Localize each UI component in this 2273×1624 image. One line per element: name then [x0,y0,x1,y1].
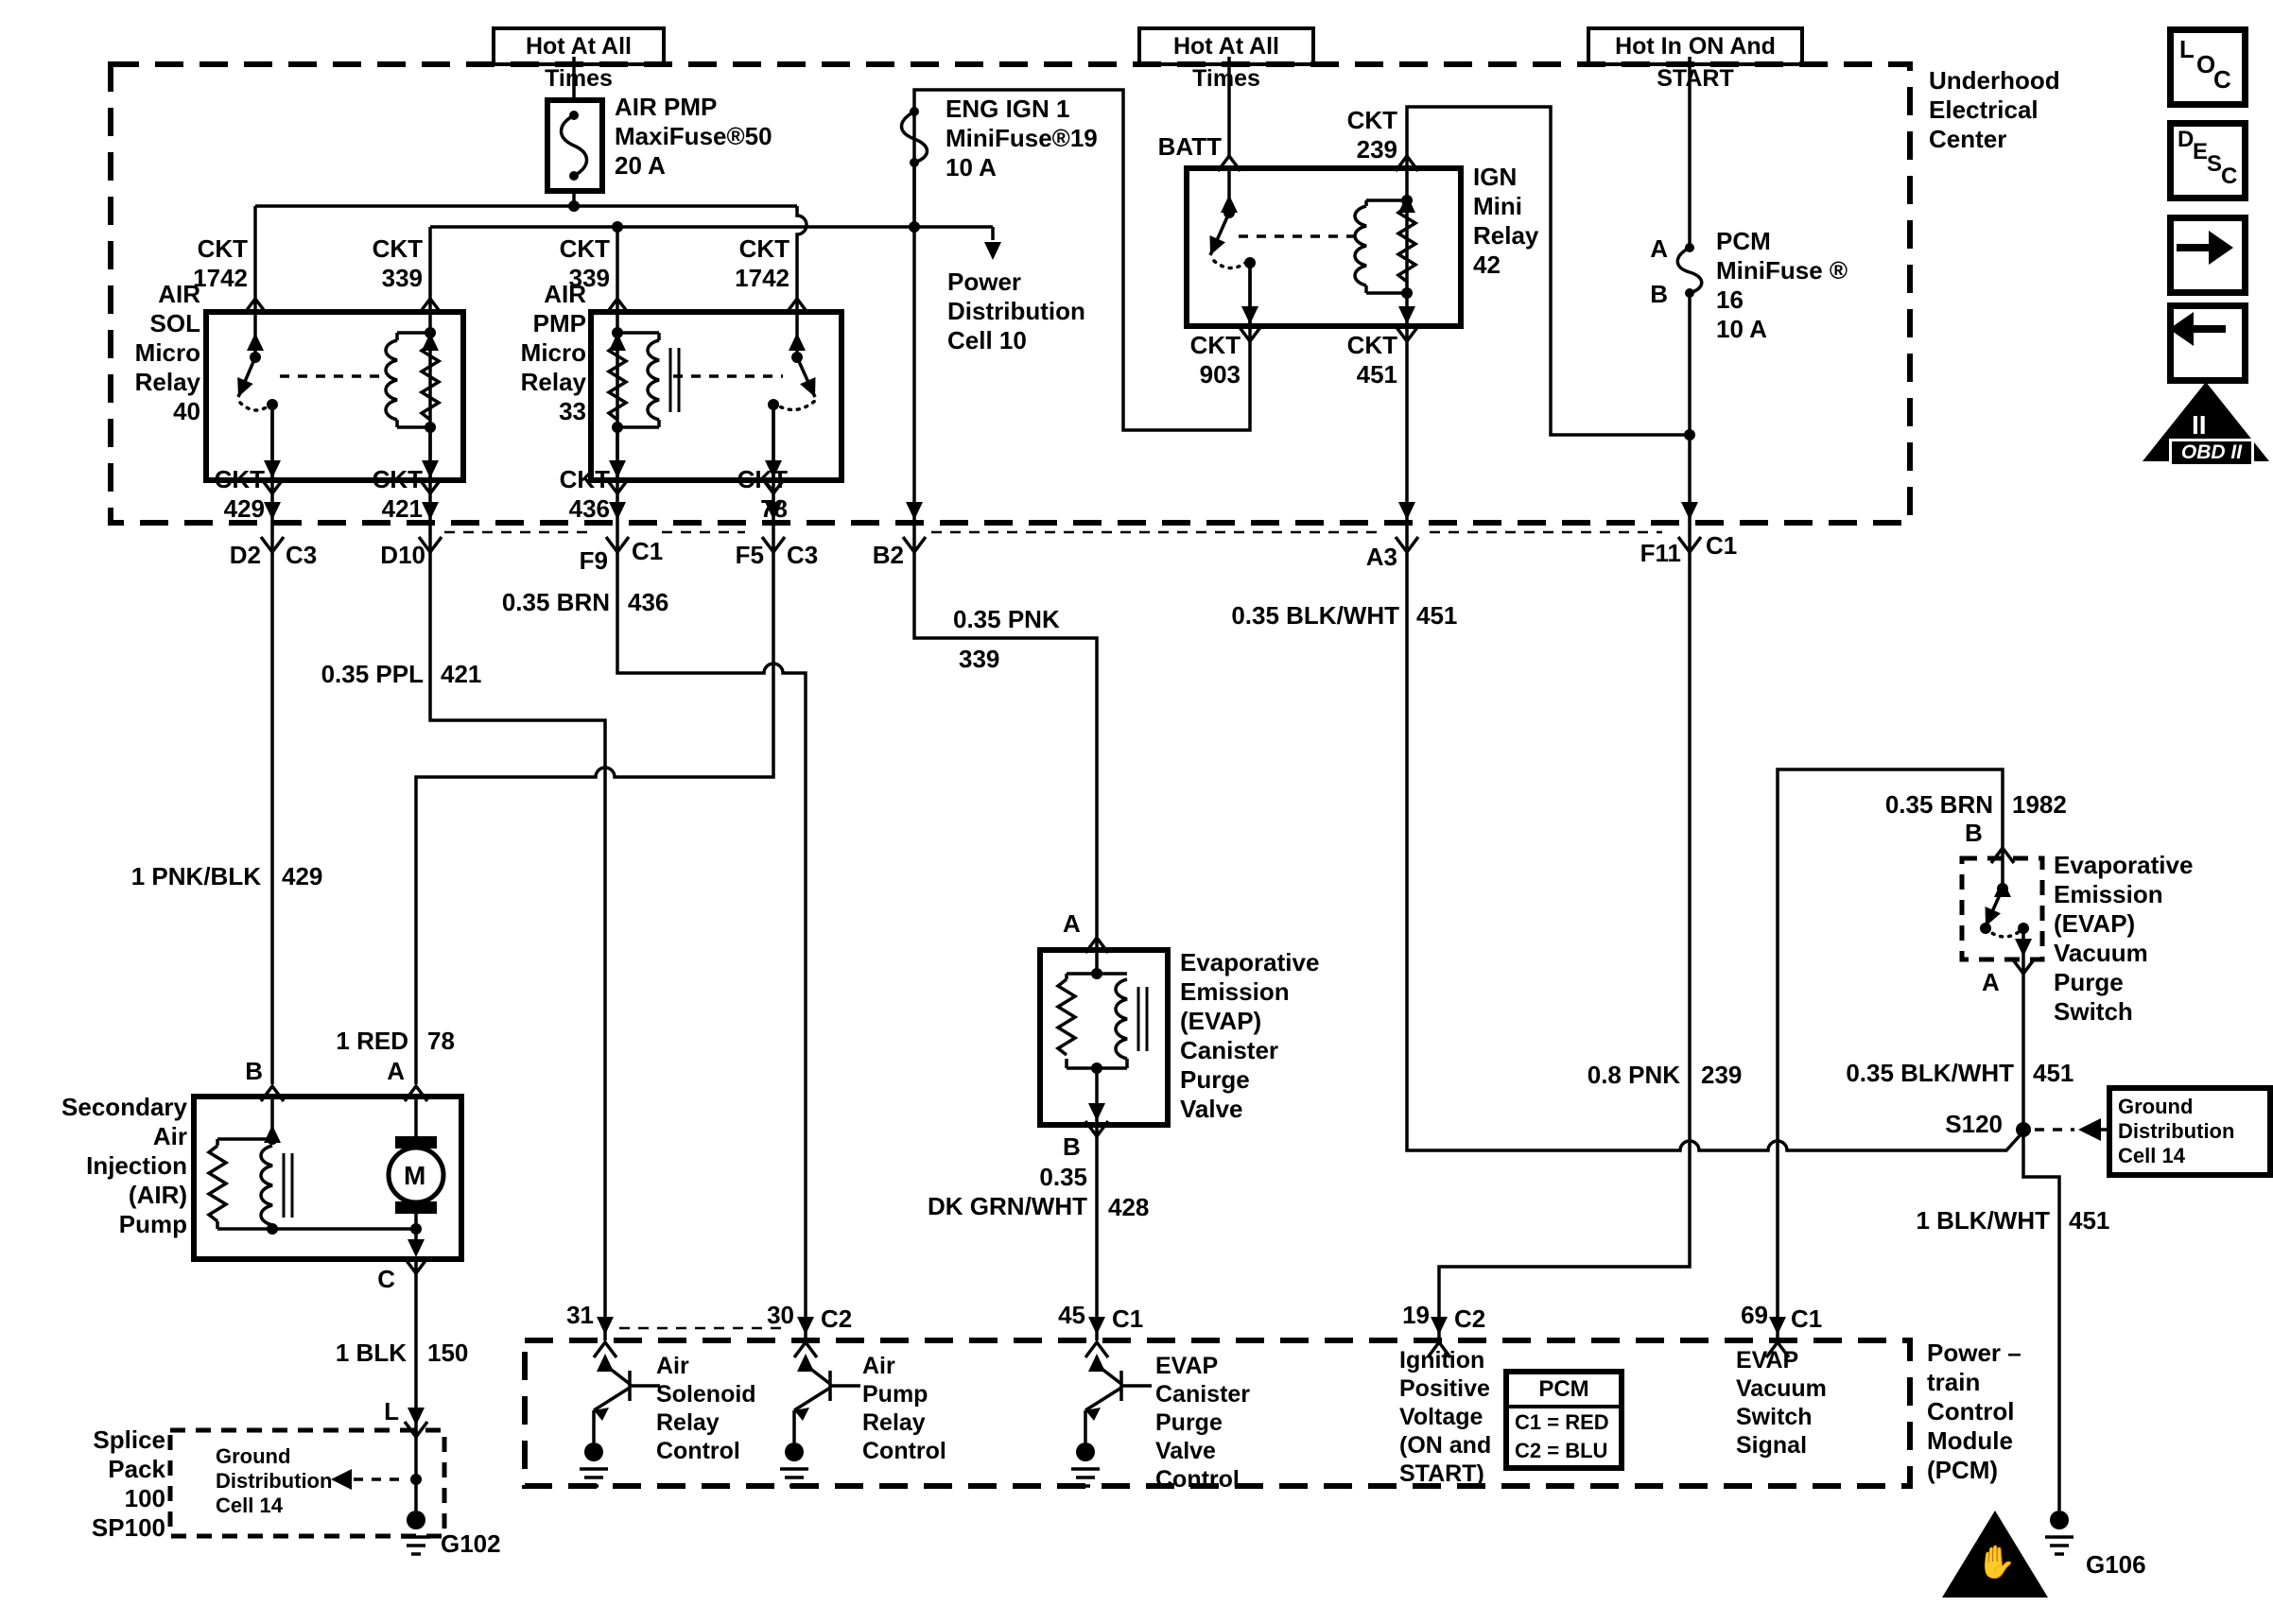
loc-icon[interactable]: L O C [2167,26,2248,108]
desc-icon[interactable]: D E S C [2167,120,2248,201]
pump-exit-arrow [408,1239,425,1257]
wire451a-ckt: 451 [1416,601,1457,631]
wire1982-name: 0.35 BRN [1885,790,1993,820]
underhood-title: Underhood Electrical Center [1929,66,2060,154]
purge-valve-core [1138,987,1147,1051]
air-pump-core [284,1153,292,1218]
obd2-label: OBD II [2169,439,2254,467]
wire428-ckt: 428 [1108,1193,1149,1222]
air-pump-label: Secondary Air Injection (AIR) Pump [61,1093,187,1239]
pump-term-a: A [387,1057,405,1086]
ground-dist-s120-text: Ground Distribution Cell 14 [2118,1095,2262,1168]
ckt339-label-1: CKT 339 [373,234,423,293]
transistor-45 [1071,1354,1152,1486]
relay33-coil [648,340,659,420]
relay40-coil-net [397,318,430,480]
pcm-connector-legend: PCM C1 = RED C2 = BLU [1503,1369,1624,1471]
pin30-conn: C2 [821,1304,852,1334]
relay33-core [670,348,679,412]
switch-term-b: B [1965,819,1983,848]
wire239-ckt: 239 [1701,1061,1742,1090]
ground-dist-refbox: Ground Distribution Cell 14 [2107,1085,2273,1178]
legend-c2: C2 = BLU [1509,1437,1619,1465]
s120-label: S120 [1945,1110,2003,1139]
wire421-ckt: 421 [441,660,481,689]
wire451b-name: 0.35 BLK/WHT [1846,1059,2014,1088]
wire1982-ckt: 1982 [2012,790,2067,820]
air-pump-resistor [209,1146,226,1221]
pin-b2: B2 [873,541,904,570]
pump-term-l: L [384,1397,399,1426]
transistor-30 [780,1354,860,1486]
fn31-label: Air Solenoid Relay Control [656,1352,756,1465]
relay33-label: AIR PMP Micro Relay 33 [521,280,586,426]
pin-f9-c1: C1 [632,537,663,566]
purge-valve-box [1040,950,1168,1125]
wire421-name: 0.35 PPL [321,660,424,689]
wire436-ckt: 436 [628,588,668,617]
switch-term-a: A [1982,968,2000,997]
loc-c: C [2213,65,2231,95]
ckt421-label: CKT 421 [373,465,423,524]
wire150-ckt: 150 [427,1339,468,1368]
ckt1742-label-2: CKT 1742 [735,234,789,293]
pin69: 69 [1741,1301,1768,1330]
desc-s: S [2207,151,2222,178]
pin19: 19 [1402,1301,1430,1330]
relay42-arm-arrow [1203,235,1225,259]
pin-f5: F5 [736,541,764,570]
pin-d2: D2 [230,541,261,570]
wire-rail-339 [430,227,993,318]
pcm-title: Power – train Control Module (PCM) [1927,1339,2021,1485]
hot-at-all-times-2: Hot At All Times [1137,26,1315,66]
ckt903-label: CKT 903 [1190,331,1241,389]
desc-c: C [2221,164,2237,190]
ground-dist-splice-text: Ground Distribution Cell 14 [216,1444,332,1518]
relay40-arm-arrow [231,377,253,401]
pin-d2-c3: C3 [286,541,317,570]
g102-label: G102 [441,1529,501,1559]
maxifuse-element [562,115,587,176]
relay40-coil [386,340,397,420]
pin45: 45 [1058,1301,1085,1330]
pcm-fuse-element [1677,248,1702,293]
motor-letter: M [404,1161,425,1190]
power-dist-arrow [984,242,1001,260]
purge-valve-coil [1116,979,1127,1059]
wiring-diagram: Hot At All Times Hot At All Times Hot In… [0,0,2273,1624]
ckt339-label-2: CKT 339 [560,234,610,293]
next-arrow-icon[interactable] [2167,215,2248,296]
s120-ref-arrow [2078,1118,2101,1141]
pin-f5-c3: C3 [787,541,818,570]
ckt1742-label-1: CKT 1742 [193,234,248,293]
pin-f11-c1: C1 [1706,531,1737,561]
ckt451-label: CKT 451 [1347,331,1397,389]
desc-e: E [2193,139,2208,165]
ckt429-label: CKT 429 [215,465,265,524]
prev-arrow-icon[interactable] [2167,302,2248,384]
purge-valve-resistor [1058,979,1075,1055]
wire436-name: 0.35 BRN [502,588,610,617]
wire78-ckt: 78 [427,1027,455,1056]
relay42-coil [1355,206,1366,285]
pin-f11: F11 [1640,539,1681,568]
pin45-conn: C1 [1112,1304,1143,1334]
switch-arc [1986,928,2023,937]
power-dist-ref: Power Distribution Cell 10 [947,268,1085,355]
connector-terminals [244,156,2035,1437]
esd-hand-icon: ✋ [1976,1548,2016,1578]
ckt436-label: CKT 436 [560,465,610,524]
obd2-numeral: II [2192,410,2207,440]
relay40-label: AIR SOL Micro Relay 40 [135,280,200,426]
valve-term-a: A [1063,909,1081,939]
pcm-fuse-b: B [1650,280,1668,309]
wire451b-ckt: 451 [2033,1059,2073,1088]
wire239-name: 0.8 PNK [1588,1061,1680,1090]
pin-f9: F9 [580,546,608,576]
loc-l: L [2179,35,2195,64]
splice-pack-label: Splice Pack 100 SP100 [92,1425,165,1543]
wire339-name: 0.35 PNK [953,605,1060,634]
fn69-label: EVAP Vacuum Switch Signal [1736,1346,1827,1460]
wire-451-a3 [1407,293,2023,1150]
pin19-conn: C2 [1454,1304,1485,1334]
wire-1982 [1778,769,2003,1340]
legend-title: PCM [1509,1374,1619,1408]
legend-c1: C1 = RED [1509,1408,1619,1437]
flow-arrows [247,195,2032,1425]
vac-switch-label: Evaporative Emission (EVAP) Vacuum Purge… [2054,851,2193,1027]
transistor-31 [580,1354,660,1486]
wire428-name: 0.35 DK GRN/WHT [928,1163,1087,1221]
motor-cap-bottom [395,1201,437,1214]
wire451c-ckt: 451 [2069,1206,2109,1235]
pin30: 30 [767,1301,794,1330]
ckt78-label: CKT 78 [737,465,788,524]
air-pump-coil [261,1146,272,1225]
splice-ref-arrow [331,1469,352,1490]
wire451a-name: 0.35 BLK/WHT [1231,601,1399,631]
maxifuse-label: AIR PMP MaxiFuse®50 20 A [615,93,772,181]
g106-ground [2045,1511,2073,1554]
pin31: 31 [566,1301,594,1330]
fn19-label: Ignition Positive Voltage (ON and START) [1399,1346,1491,1488]
pump-term-c: C [377,1265,395,1294]
wire150-name: 1 BLK [336,1339,407,1368]
eng-ign-fuse-label: ENG IGN 1 MiniFuse®19 10 A [946,95,1098,182]
relay33-box [591,312,842,480]
pcm-fuse-label: PCM MiniFuse ® 16 10 A [1716,227,1848,344]
hot-at-all-times-1: Hot At All Times [492,26,666,66]
batt-label: BATT [1158,132,1222,162]
wire451c-name: 1 BLK/WHT [1916,1206,2050,1235]
pin69-conn: C1 [1791,1304,1822,1334]
fn30-label: Air Pump Relay Control [862,1352,946,1465]
pcm-fuse-a: A [1650,234,1668,264]
relay42-label: IGN Mini Relay 42 [1473,163,1538,280]
desc-d: D [2178,127,2194,153]
g102-ground [402,1511,430,1554]
wire-239-feed [1407,107,1690,435]
g106-label: G106 [2086,1550,2146,1580]
ckt239-label: CKT 239 [1347,106,1397,164]
wire429-name: 1 PNK/BLK [131,862,261,891]
purge-valve-label: Evaporative Emission (EVAP) Canister Pur… [1180,948,1319,1124]
wire78-name: 1 RED [336,1027,408,1056]
wire429-ckt: 429 [282,862,322,891]
pump-term-b: B [245,1057,263,1086]
wire-239-to-pin19 [1439,293,1690,1340]
valve-term-b: B [1063,1132,1081,1162]
wire339-ckt: 339 [959,645,999,674]
relay33-switch-arc [773,401,815,410]
fn45-label: EVAP Canister Purge Valve Control [1155,1352,1250,1494]
relay33-arm-arrow [800,377,823,401]
hot-in-on-and-start: Hot In ON And START [1587,26,1804,66]
pin-d10: D10 [380,541,425,570]
pin-a3: A3 [1366,543,1397,572]
